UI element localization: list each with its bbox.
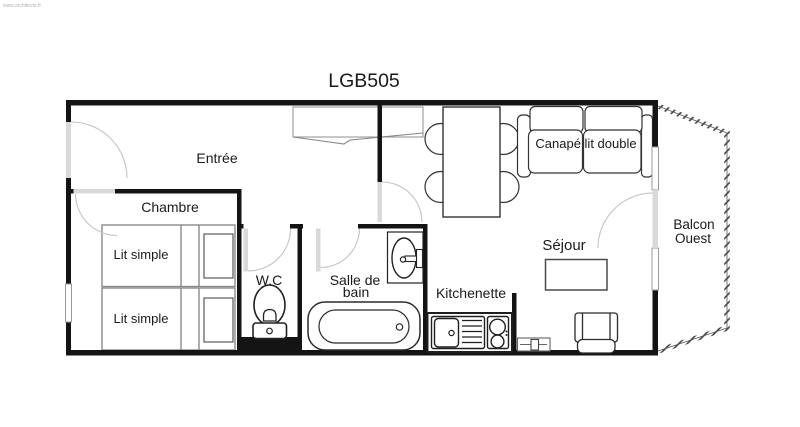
window-right-upper — [652, 147, 659, 190]
label-canape-lit-double: Canapé lit double — [535, 136, 636, 151]
label-lit-simple-2: Lit simple — [114, 311, 169, 326]
toilet-icon — [253, 285, 287, 339]
floor-plan-page: www.architecte.fr LGB505 Entrée Chambre … — [0, 0, 800, 427]
closet — [293, 107, 423, 144]
door-balcony — [598, 190, 658, 248]
door-living — [378, 182, 423, 222]
door-wc — [244, 229, 291, 272]
plan-title: LGB505 — [328, 70, 400, 92]
watermark-text: www.architecte.fr — [3, 3, 41, 9]
washbasin-icon — [388, 232, 424, 283]
label-entree: Entrée — [196, 150, 237, 166]
pillow — [204, 298, 233, 342]
window-left — [66, 284, 72, 322]
coffee-table — [546, 260, 608, 291]
label-sejour: Séjour — [542, 237, 585, 254]
label-kitchenette: Kitchenette — [436, 285, 506, 301]
label-chambre: Chambre — [141, 199, 199, 215]
label-balcon-1: Balcon — [673, 217, 714, 232]
sink-basin — [435, 319, 459, 348]
burner — [491, 335, 504, 348]
door-entrance — [66, 122, 127, 178]
floor-plan-svg: www.architecte.fr LGB505 Entrée Chambre … — [0, 0, 800, 427]
window-right-lower — [652, 248, 659, 290]
technical-shaft — [238, 337, 298, 353]
sink-drain — [449, 330, 454, 335]
dining-table — [443, 107, 500, 217]
label-lit-simple-1: Lit simple — [114, 247, 169, 262]
kitchen-counter — [428, 313, 513, 352]
door-bathroom — [316, 229, 360, 272]
burner — [490, 319, 506, 335]
label-salle-de-bain-2: bain — [343, 284, 369, 300]
bathtub-icon — [308, 302, 420, 350]
pillow — [204, 234, 233, 278]
label-balcon-2: Ouest — [675, 231, 711, 246]
radiator-icon — [518, 338, 551, 351]
armchair-icon — [575, 313, 618, 353]
label-wc: W.C — [256, 272, 282, 288]
